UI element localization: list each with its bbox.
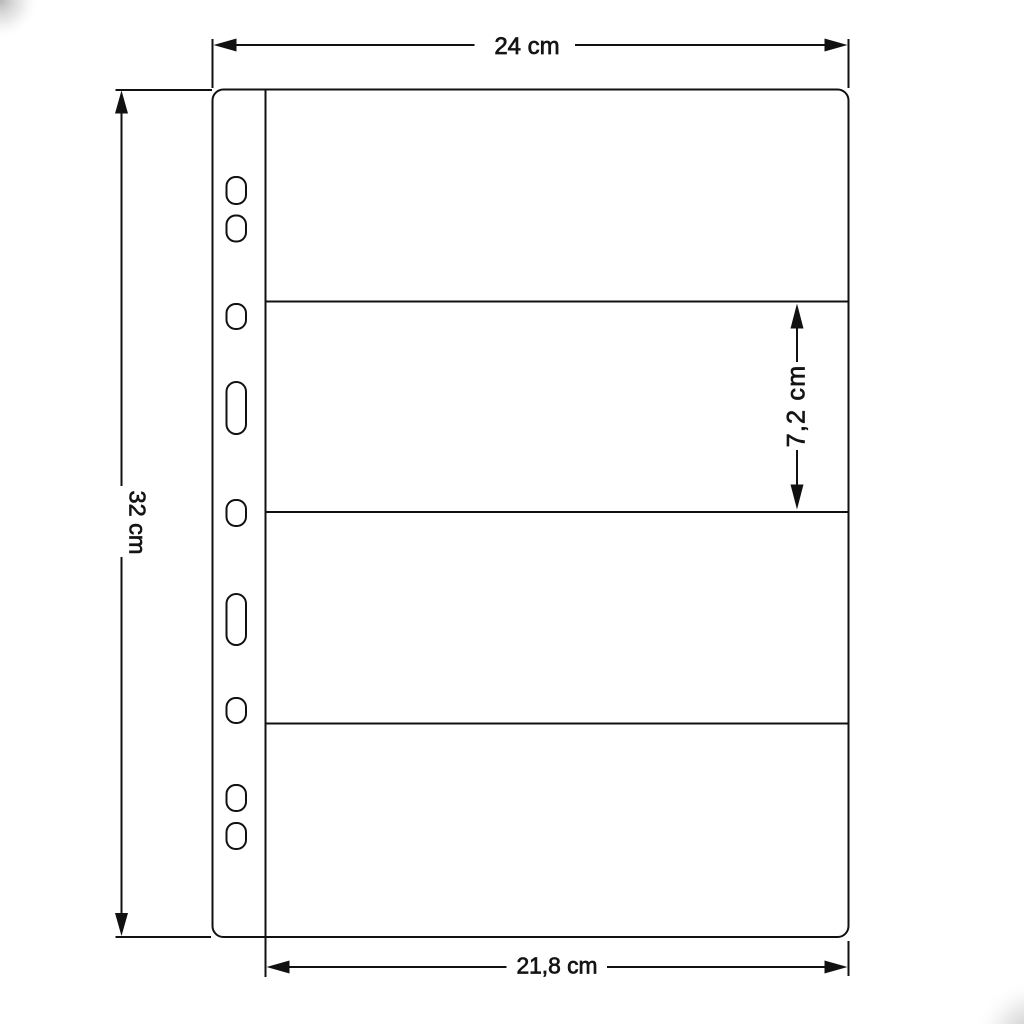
svg-text:21,8 cm: 21,8 cm <box>516 953 597 979</box>
svg-text:24 cm: 24 cm <box>494 33 559 60</box>
svg-text:7,2 cm: 7,2 cm <box>782 365 810 448</box>
svg-text:32 cm: 32 cm <box>124 491 150 555</box>
